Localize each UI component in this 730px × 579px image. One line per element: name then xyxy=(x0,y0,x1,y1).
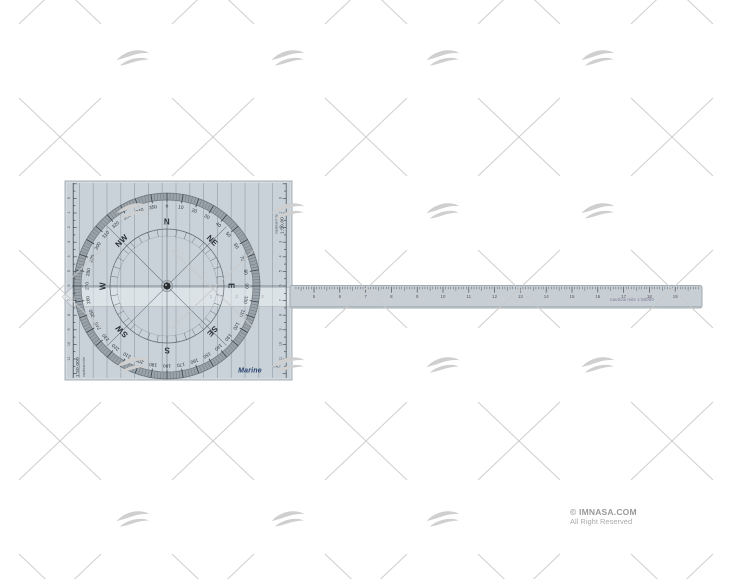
arm-number: 13 xyxy=(518,294,523,299)
wave-logo-watermark xyxy=(272,511,305,526)
wave-logo-stroke-bottom xyxy=(120,519,149,527)
arm-number: 15 xyxy=(570,294,575,299)
scale-label: 8 xyxy=(67,314,71,316)
wave-logo-stroke-bottom xyxy=(430,519,459,527)
cross-line xyxy=(172,554,254,579)
cross-watermark xyxy=(631,554,713,579)
scale-label: 0 xyxy=(279,197,283,199)
scale-label: 3 xyxy=(67,241,71,243)
cross-line xyxy=(325,554,407,579)
wave-logo-stroke-bottom xyxy=(430,365,459,373)
cross-line xyxy=(19,554,101,579)
cross-watermark xyxy=(631,402,713,480)
arm-number: 11 xyxy=(467,294,472,299)
copyright-watermark: © IMNASA.COM All Right Reserved xyxy=(570,508,637,526)
scale-label: 10 xyxy=(67,342,71,346)
wave-logo-stroke-bottom xyxy=(120,58,149,66)
cross-watermark xyxy=(478,554,560,579)
cross-watermark xyxy=(631,0,713,24)
wave-logo-stroke-bottom xyxy=(585,58,614,66)
wave-logo-stroke-bottom xyxy=(430,58,459,66)
scale-label: 9 xyxy=(279,328,283,330)
wave-logo-watermark xyxy=(427,203,460,218)
brand-text: Marine xyxy=(238,368,262,375)
arm-number: 14 xyxy=(544,294,549,299)
wave-logo-stroke-bottom xyxy=(585,365,614,373)
cross-watermark xyxy=(631,98,713,176)
scale-label: 0 xyxy=(67,197,71,199)
scale-label: 10 xyxy=(279,342,283,346)
cross-watermark xyxy=(19,0,101,24)
cross-line xyxy=(325,554,407,579)
cross-watermark xyxy=(172,554,254,579)
wave-logo-watermark xyxy=(427,511,460,526)
scale-label: 1 xyxy=(67,212,71,214)
wave-logo-watermark xyxy=(272,50,305,65)
arm-scale-note: nautical mile 1:50000 xyxy=(610,297,654,302)
cross-watermark xyxy=(325,98,407,176)
cross-line xyxy=(631,554,713,579)
cross-line xyxy=(172,554,254,579)
scale-label: 6 xyxy=(279,285,283,287)
plotter-illustration: 0102030405060708090100110120130140150160… xyxy=(0,0,730,579)
cross-watermark xyxy=(19,554,101,579)
wave-logo-watermark xyxy=(582,203,615,218)
scale-note-bottom-left-value: 1:50,000 xyxy=(75,357,80,377)
product-photo: 0102030405060708090100110120130140150160… xyxy=(0,0,730,579)
wave-logo-stroke-bottom xyxy=(430,211,459,219)
scale-label: 1 xyxy=(279,212,283,214)
navigation-plotter: 0102030405060708090100110120130140150160… xyxy=(62,181,702,380)
cross-watermark xyxy=(325,0,407,24)
arm-number: 16 xyxy=(595,294,600,299)
scale-label: 9 xyxy=(67,328,71,330)
scale-note-bottom-left-unit: nautical mile xyxy=(82,357,86,377)
cross-line xyxy=(478,554,560,579)
scale-label: 5 xyxy=(67,270,71,272)
arm-number: 19 xyxy=(673,294,678,299)
scale-label: 4 xyxy=(279,255,283,257)
arm-number: 12 xyxy=(492,294,497,299)
cross-line xyxy=(478,554,560,579)
scale-label: 7 xyxy=(279,299,283,301)
wave-logo-watermark xyxy=(582,50,615,65)
cross-watermark xyxy=(19,402,101,480)
wave-logo-watermark xyxy=(117,50,150,65)
wave-logo-stroke-bottom xyxy=(275,519,304,527)
cross-watermark xyxy=(172,98,254,176)
arm-number: 10 xyxy=(441,294,446,299)
wave-logo-watermark xyxy=(582,357,615,372)
wave-logo-watermark xyxy=(117,511,150,526)
wave-logo-watermark xyxy=(427,50,460,65)
scale-label: 6 xyxy=(67,285,71,287)
pivot-highlight xyxy=(165,284,167,286)
scale-label: 3 xyxy=(279,241,283,243)
cross-watermark xyxy=(478,0,560,24)
cross-watermark xyxy=(478,402,560,480)
wave-logo-stroke-bottom xyxy=(585,211,614,219)
scale-label: 7 xyxy=(67,299,71,301)
scale-label: 8 xyxy=(279,314,283,316)
scale-label: 11 xyxy=(67,357,71,361)
cross-line xyxy=(19,554,101,579)
cross-line xyxy=(631,554,713,579)
scale-label: 4 xyxy=(67,255,71,257)
cross-watermark xyxy=(19,98,101,176)
scale-label: 2 xyxy=(67,226,71,228)
wave-logo-watermark xyxy=(427,357,460,372)
wave-logo-stroke-bottom xyxy=(275,58,304,66)
cross-watermark xyxy=(478,98,560,176)
cross-watermark xyxy=(172,0,254,24)
cross-watermark xyxy=(325,554,407,579)
cross-watermark xyxy=(172,402,254,480)
cross-watermark xyxy=(325,402,407,480)
scale-label: 5 xyxy=(279,270,283,272)
rights-text: All Right Reserved xyxy=(570,518,637,527)
pivot-dot xyxy=(163,282,170,289)
